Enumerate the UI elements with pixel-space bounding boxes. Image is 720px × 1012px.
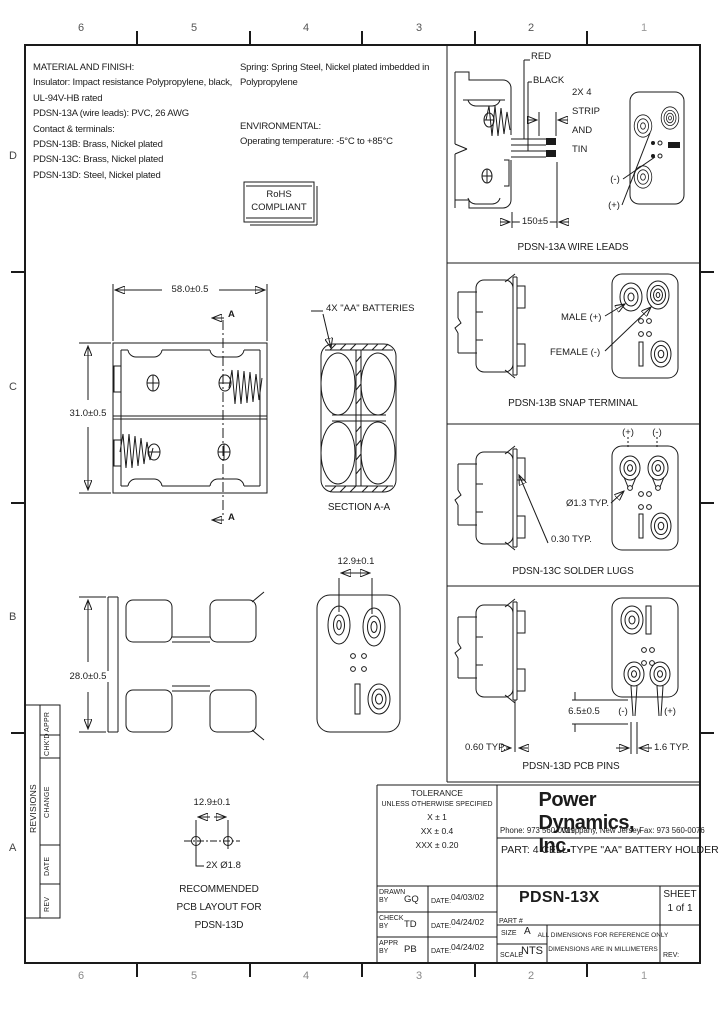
tolerance-title: TOLERANCE — [411, 788, 463, 799]
male-terminal-label: MALE (+) — [561, 312, 601, 323]
drawing-sheet: 6 5 4 3 2 1 6 5 4 3 2 1 D C B A MATERIAL… — [0, 0, 720, 1012]
spring-line: Polypropylene — [240, 75, 445, 90]
strip-note-line: STRIP — [572, 106, 600, 117]
dim-pcb-spacing: 12.9±0.1 — [192, 797, 233, 808]
zone-letter-left: C — [9, 381, 17, 393]
spring-line: Spring: Spring Steel, Nickel plated imbe… — [240, 60, 445, 75]
environmental-line: Operating temperature: -5°C to +85°C — [240, 134, 445, 149]
material-line: Contact & terminals: — [33, 122, 245, 137]
wire-red-label: RED — [531, 51, 551, 62]
drawn-by-name: GQ — [404, 894, 419, 905]
revisions-col-change: CHANGE — [44, 786, 51, 818]
rohs-compliant-label: COMPLIANT — [251, 202, 306, 213]
drawn-date-label: DATE: — [431, 896, 451, 907]
panel-b-caption: PDSN-13B SNAP TERMINAL — [508, 398, 638, 409]
polarity-neg-label: (-) — [618, 706, 628, 717]
zone-number-bottom: 4 — [303, 970, 309, 982]
appr-date: 04/24/02 — [451, 942, 484, 953]
tolerance-row: XX ± 0.4 — [421, 826, 454, 837]
environmental-title: ENVIRONMENTAL: — [240, 119, 445, 134]
zone-number-top: 4 — [303, 22, 309, 34]
rev-label: REV: — [663, 950, 679, 961]
part-description: PART: 4 CELL TYPE "AA" BATTERY HOLDER — [501, 845, 719, 856]
scale-label: SCALE — [500, 950, 523, 961]
material-line: PDSN-13D: Steel, Nickel plated — [33, 168, 245, 183]
strip-note-line: 2X 4 — [572, 87, 592, 98]
section-view — [311, 311, 396, 492]
material-notes: MATERIAL AND FINISH: Insulator: Impact r… — [33, 60, 245, 183]
zone-letter-left: A — [9, 842, 16, 854]
revisions-col-date: DATE — [44, 857, 51, 876]
top-view — [79, 284, 267, 520]
polarity-neg-label: (-) — [610, 174, 620, 185]
appr-date-label: DATE: — [431, 946, 451, 957]
dim-lug-thickness: 0.30 TYP. — [551, 534, 592, 545]
pcb-caption-line: PDSN-13D — [195, 920, 244, 931]
revisions-col-rev: REV — [44, 897, 51, 912]
dim-pin-length: 6.5±0.5 — [566, 706, 602, 717]
pcb-caption-line: PCB LAYOUT FOR — [177, 902, 262, 913]
end-view — [317, 573, 400, 732]
scale-value: NTS — [521, 946, 543, 957]
dim-pin-width: 1.6 TYP. — [654, 742, 690, 753]
tolerance-subtitle: UNLESS OTHERWISE SPECIFIED — [381, 799, 492, 810]
zone-number-bottom: 3 — [416, 970, 422, 982]
strip-note-line: AND — [572, 125, 592, 136]
panel-b-art — [455, 274, 678, 378]
dim-end-width: 12.9±0.1 — [336, 556, 377, 567]
company-fax: Fax: 973 560-0076 — [639, 825, 704, 836]
zone-number-bottom: 1 — [641, 970, 647, 982]
material-line: PDSN-13A (wire leads): PVC, 26 AWG — [33, 106, 245, 121]
dim-top-height: 31.0±0.5 — [68, 408, 109, 419]
material-line: PDSN-13B: Brass, Nickel plated — [33, 137, 245, 152]
polarity-pos-label: (+) — [608, 200, 620, 211]
pcb-hole-callout: 2X Ø1.8 — [206, 860, 241, 871]
part-number: PDSN-13X — [519, 892, 600, 903]
section-arrow-label-bottom: A — [228, 512, 235, 523]
zone-number-top: 1 — [641, 22, 647, 34]
tolerance-row: XXX ± 0.20 — [416, 840, 459, 851]
zone-number-bottom: 2 — [528, 970, 534, 982]
batteries-callout: 4X "AA" BATTERIES — [326, 303, 414, 314]
zone-number-top: 6 — [78, 22, 84, 34]
dim-wire-length: 150±5 — [520, 216, 550, 227]
zone-number-bottom: 5 — [191, 970, 197, 982]
company-city: Whippany, New Jersey — [561, 825, 640, 836]
revisions-title: REVISIONS — [28, 784, 38, 833]
dim-pin-thickness: 0.60 TYP. — [465, 742, 506, 753]
tolerance-row: X ± 1 — [427, 812, 447, 823]
zone-letter-left: D — [9, 150, 17, 162]
rohs-label: RoHS — [266, 189, 291, 200]
check-date: 04/24/02 — [451, 917, 484, 928]
panel-a-art — [455, 60, 684, 228]
polarity-neg-label: (-) — [652, 427, 662, 438]
female-terminal-label: FEMALE (-) — [550, 347, 600, 358]
wire-black-label: BLACK — [533, 75, 564, 86]
reference-note-line: DIMENSIONS ARE IN MILLIMETERS — [548, 944, 657, 955]
environmental-notes: ENVIRONMENTAL: Operating temperature: -5… — [240, 119, 445, 150]
polarity-pos-label: (+) — [622, 427, 634, 438]
size-label: SIZE — [501, 928, 517, 939]
part-number-label: PART # — [499, 916, 523, 927]
revisions-col-appr: APPR — [44, 712, 51, 732]
pcb-layout — [184, 817, 240, 866]
zone-number-top: 3 — [416, 22, 422, 34]
material-line: PDSN-13C: Brass, Nickel plated — [33, 152, 245, 167]
material-title: MATERIAL AND FINISH: — [33, 60, 245, 75]
sheet-number: 1 of 1 — [667, 903, 692, 914]
dim-lug-hole: Ø1.3 TYP. — [566, 498, 609, 509]
section-caption: SECTION A-A — [328, 502, 390, 513]
material-line: Insulator: Impact resistance Polypropyle… — [33, 75, 245, 90]
appr-by-name: PB — [404, 944, 417, 955]
zone-number-top: 5 — [191, 22, 197, 34]
dim-side-height: 28.0±0.5 — [68, 671, 109, 682]
panel-a-caption: PDSN-13A WIRE LEADS — [518, 242, 629, 253]
size-value: A — [524, 926, 531, 937]
reference-note-line: ALL DIMENSIONS FOR REFERENCE ONLY — [538, 930, 669, 941]
check-by-name: TD — [404, 919, 417, 930]
material-line: UL-94V-HB rated — [33, 91, 245, 106]
check-date-label: DATE: — [431, 921, 451, 932]
zone-number-top: 2 — [528, 22, 534, 34]
polarity-pos-label: (+) — [664, 706, 676, 717]
sheet-label: SHEET — [663, 889, 696, 900]
zone-number-bottom: 6 — [78, 970, 84, 982]
section-arrow-label-top: A — [228, 309, 235, 320]
panel-d-art — [455, 598, 678, 754]
dim-top-width: 58.0±0.5 — [170, 284, 211, 295]
zone-letter-left: B — [9, 611, 16, 623]
spring-notes: Spring: Spring Steel, Nickel plated imbe… — [240, 60, 445, 91]
drawn-date: 04/03/02 — [451, 892, 484, 903]
revisions-col-chkd: CHK'D — [44, 733, 51, 756]
side-view — [79, 592, 264, 740]
strip-note-line: TIN — [572, 144, 587, 155]
panel-d-caption: PDSN-13D PCB PINS — [522, 761, 619, 772]
panel-c-caption: PDSN-13C SOLDER LUGS — [512, 566, 633, 577]
pcb-caption-line: RECOMMENDED — [179, 884, 258, 895]
